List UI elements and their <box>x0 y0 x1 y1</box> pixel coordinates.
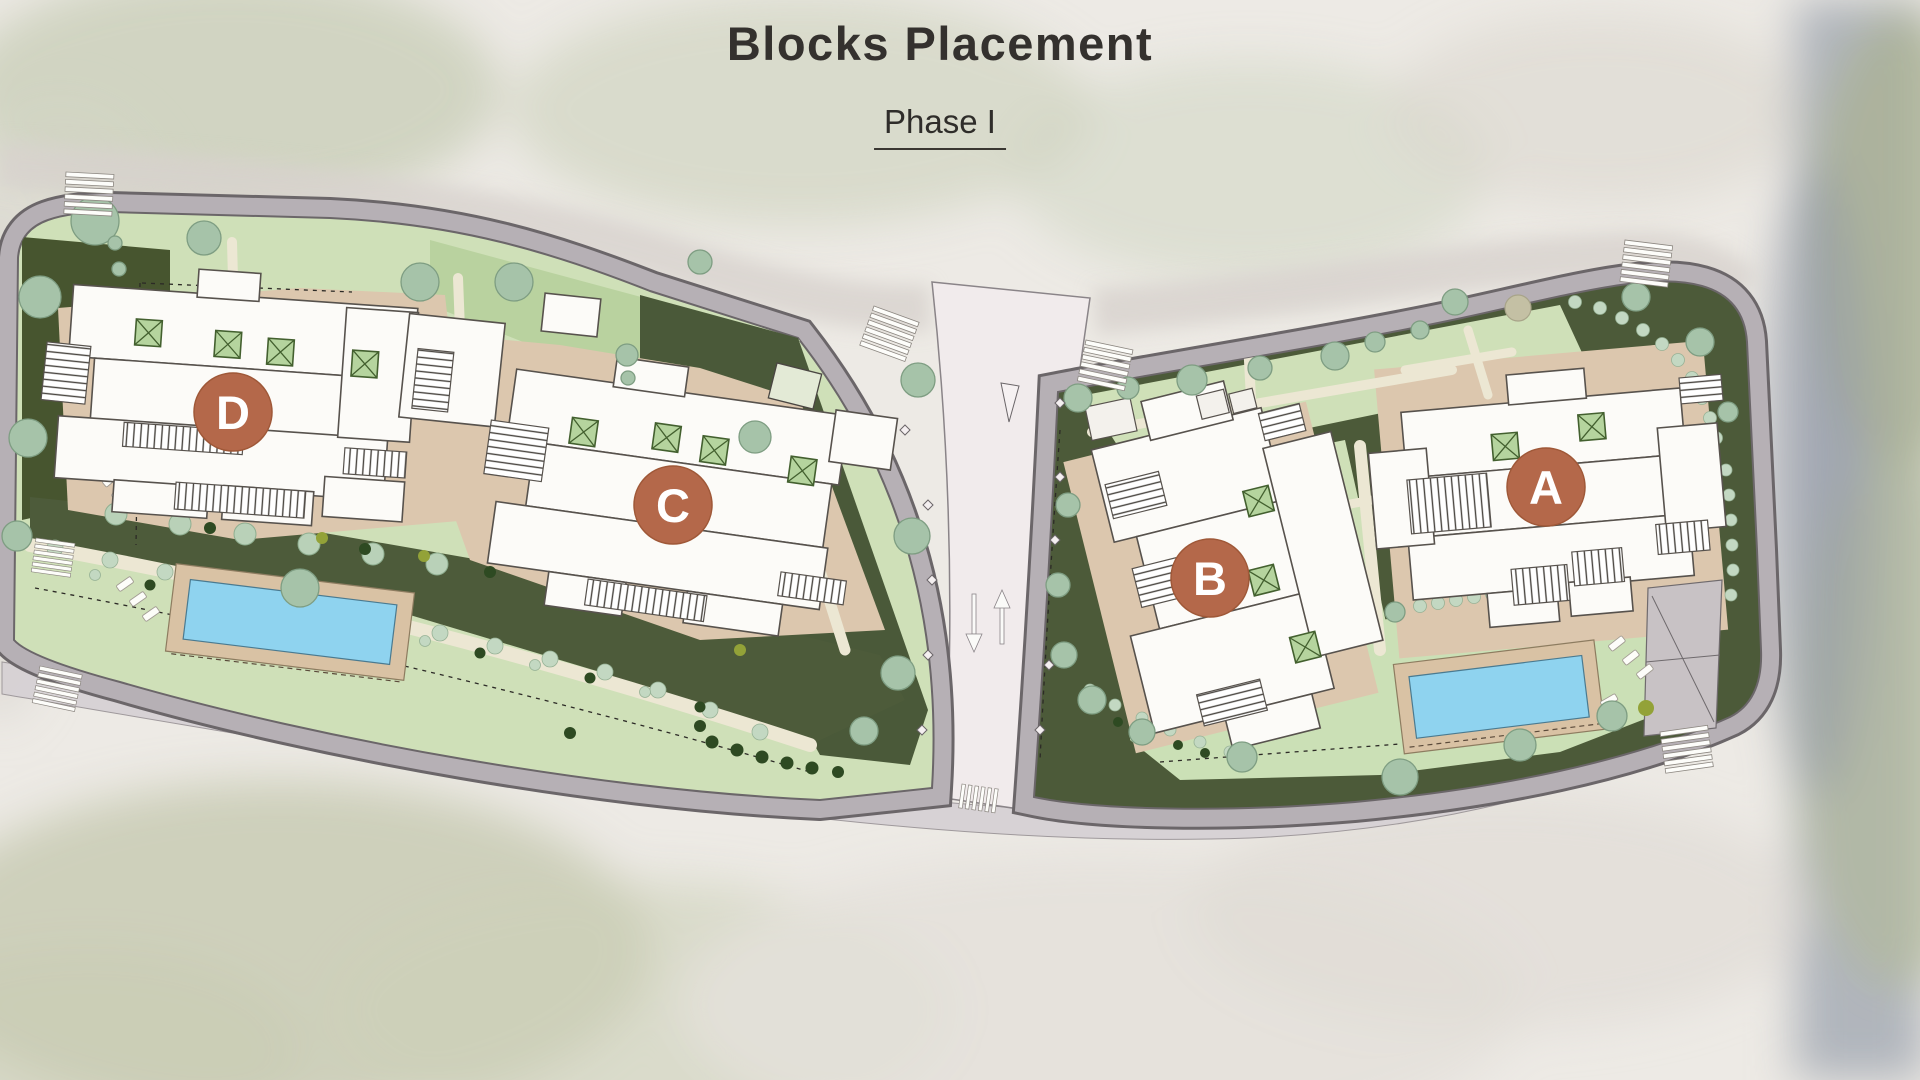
stairs-west-entry <box>41 342 91 404</box>
block-a-label: A <box>1529 461 1563 514</box>
courtyard-icon <box>700 436 729 465</box>
driveway-east <box>1644 580 1722 736</box>
courtyard-icon <box>351 350 379 378</box>
courtyard-icon <box>1290 631 1322 663</box>
block-a-badge[interactable]: A <box>1507 448 1585 526</box>
block-d-label: D <box>216 386 250 439</box>
courtyard-icon <box>267 338 295 366</box>
block-c-label: C <box>656 479 690 532</box>
block-d-badge[interactable]: D <box>194 373 272 451</box>
phase-subtitle: Phase I <box>874 103 1006 150</box>
block-c-badge[interactable]: C <box>634 466 712 544</box>
courtyard-icon <box>788 456 817 485</box>
block-b-label: B <box>1193 552 1227 605</box>
courtyard-icon <box>214 330 242 358</box>
courtyard-icon <box>1491 432 1519 460</box>
site-plan-canvas: D C <box>0 0 1920 1080</box>
courtyard-icon <box>569 417 598 446</box>
site-plan: D C <box>0 0 1920 1080</box>
outbuilding <box>541 293 601 337</box>
courtyard-icon <box>1248 564 1280 596</box>
block-b-badge[interactable]: B <box>1171 539 1249 617</box>
parcel-east: B A <box>1034 281 1761 808</box>
connector-building <box>399 313 505 426</box>
courtyard-icon <box>652 423 681 452</box>
courtyard-icon <box>1578 413 1606 441</box>
page-title: Blocks Placement <box>727 16 1153 71</box>
courtyard-icon <box>135 319 163 347</box>
courtyard-icon <box>1243 485 1275 517</box>
